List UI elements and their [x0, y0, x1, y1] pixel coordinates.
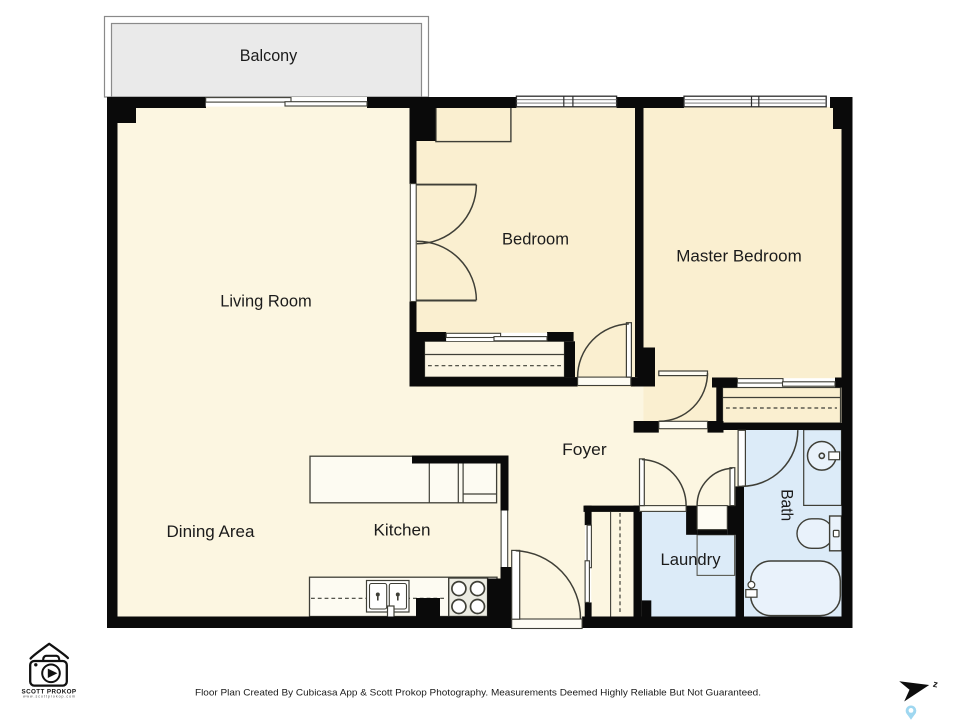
svg-text:Kitchen: Kitchen [374, 522, 431, 540]
svg-text:Floor Plan Created By Cubicasa: Floor Plan Created By Cubicasa App & Sco… [195, 687, 761, 698]
svg-text:Dining Area: Dining Area [167, 523, 256, 541]
svg-text:Foyer: Foyer [562, 441, 607, 459]
svg-text:Bedroom: Bedroom [502, 230, 569, 248]
svg-text:w w w . s c o t t p r o k o p: w w w . s c o t t p r o k o p . c o m [23, 695, 75, 699]
svg-text:Bath: Bath [778, 489, 796, 521]
svg-text:Master Bedroom: Master Bedroom [676, 247, 802, 265]
svg-text:Living Room: Living Room [220, 292, 312, 310]
svg-text:Balcony: Balcony [240, 46, 298, 65]
svg-text:Laundry: Laundry [661, 551, 722, 569]
